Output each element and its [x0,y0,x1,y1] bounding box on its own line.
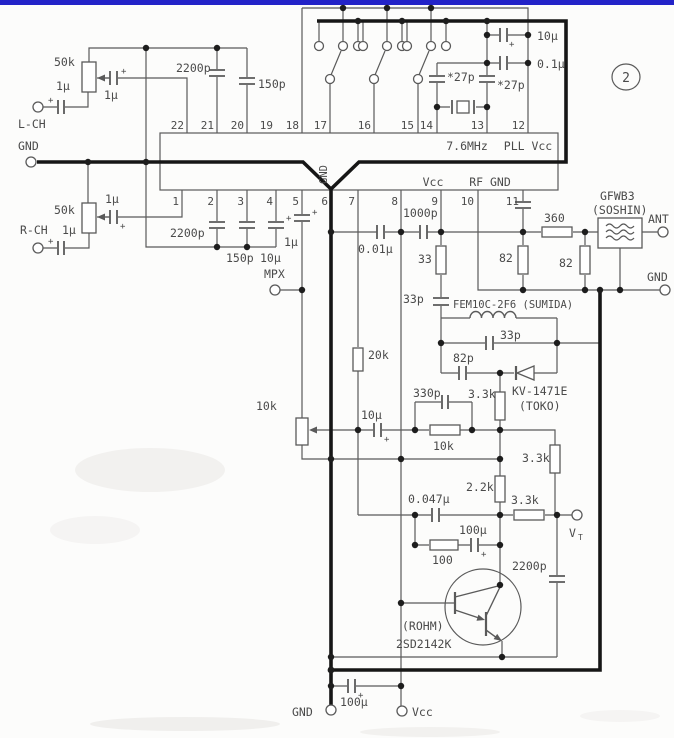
label-vcc-bottom: Vcc [412,705,433,719]
label-xtal-freq: 7.6MHz [446,139,488,153]
wiper-arrow-10k [309,427,317,434]
junction-dot [214,45,220,51]
cap-100u-b [348,679,355,693]
cap-rch-input [58,241,64,255]
label-1000p: 1000p [403,206,438,220]
label-ic-gnd-rotated: GND [318,165,330,184]
label-gnd-left: GND [18,139,39,153]
junction-dot [497,582,503,588]
pin-label-7: 7 [348,195,355,208]
junction-dot [328,229,334,235]
schematic-page: 2 L-CH GND 50k 1μ 1μ 2200p 150p R-CH 1μ … [0,0,674,738]
junction-dot [355,427,361,433]
switch1-contact-a [315,42,324,51]
label-3k3-c: 3.3k [511,493,539,507]
pin-label-20: 20 [231,119,244,132]
label-3k3-a: 3.3k [468,387,496,401]
scan-smudge [360,727,500,737]
junction-dot [328,456,334,462]
schematic-canvas: 2 L-CH GND 50k 1μ 1μ 2200p 150p R-CH 1μ … [0,0,674,738]
res-3k3-a [495,392,505,420]
plus-mark: + [121,67,127,77]
junction-dot [497,456,503,462]
label-0047u: 0.047μ [408,492,450,506]
cap-lch-wiper [110,71,117,85]
cap-2200p-c [549,576,565,582]
pin-label-16: 16 [358,119,371,132]
switch1-pole [326,75,335,84]
pot-50k-left [82,62,96,92]
label-cap-r-in: 1μ [62,223,76,237]
junction-dot [214,244,220,250]
pot-10k [296,418,308,445]
junction-dot [520,229,526,235]
res-82-a [518,246,528,274]
cap-27p-a [429,76,445,82]
cap-0047u [432,508,439,522]
switch2-contact-a [359,42,368,51]
junction-dot [469,427,475,433]
junction-dot [484,18,490,24]
junction-dot [428,5,434,11]
junction-dot [398,600,404,606]
junction-dot [497,542,503,548]
pin-label-4: 4 [266,195,273,208]
label-pll-vcc: PLL Vcc [504,139,552,153]
label-transistor-part: 2SD2142K [396,637,451,651]
cap-150p-bottom [239,222,255,228]
label-cap-l-in: 1μ [56,79,70,93]
junction-dot [443,18,449,24]
pin-label-2: 2 [207,195,214,208]
pin-label-12: 12 [512,119,525,132]
crystal-body [457,101,469,113]
junction-dot [484,60,490,66]
switch3-contact-a [403,42,412,51]
terminal-ant [658,227,668,237]
junction-dot [412,542,418,548]
junction-dot [399,18,405,24]
pin-label-8: 8 [391,195,398,208]
switch3-pole [414,75,423,84]
label-gnd-bottom: GND [292,705,313,719]
switch2-pole [370,75,379,84]
label-1u-pin5: 1μ [284,235,298,249]
junction-dot [412,512,418,518]
transistor-base-bars [455,592,486,636]
junction-dot [328,654,334,660]
cap-10u-pin4 [268,222,284,228]
label-r360: 360 [544,211,565,225]
cap-150p-top [239,78,255,84]
plus-mark: + [286,214,292,224]
antenna-filter [598,218,642,248]
terminal-lch [33,102,43,112]
res-3k3-c [514,510,544,520]
label-r20k: 20k [368,348,389,362]
junction-dot [484,32,490,38]
scan-smudge [75,448,225,492]
junction-dot [85,159,91,165]
plus-mark: + [48,96,54,106]
junction-dot [244,244,250,250]
junction-dot [412,427,418,433]
junction-dot [328,667,335,674]
junction-dot [554,512,560,518]
pin-label-3: 3 [237,195,244,208]
junction-dot [398,229,404,235]
transistor-2sd2142k [445,569,521,645]
label-0u1-pll: 0.1μ [537,57,565,71]
label-cap-l-wiper: 1μ [104,88,118,102]
junction-dot [438,229,444,235]
coil-fem10c [470,312,516,318]
emitter-arrow-2 [494,634,502,641]
plus-mark: + [509,40,515,50]
capacitor-plates [58,28,565,693]
junction-dot [582,287,588,293]
label-ic-vcc: Vcc [423,175,444,189]
junction-dot [582,229,588,235]
label-cap-r-wiper: 1μ [105,192,119,206]
junction-dot [617,287,623,293]
label-r100: 100 [432,553,453,567]
plus-mark: + [358,691,364,701]
pin-label-14: 14 [420,119,434,132]
res-2k2 [495,476,505,502]
label-varicap-maker: (TOKO) [519,399,561,413]
wiper-arrow-right [97,214,105,221]
pin-label-1: 1 [172,195,179,208]
cap-33p-b [486,336,493,350]
label-r82-b: 82 [559,256,573,270]
pin-label-6: 6 [321,195,328,208]
terminal-gnd-left [26,157,36,167]
scan-artifacts [50,448,660,737]
label-27p-a: *27p [447,70,475,84]
label-ant: ANT [648,212,669,226]
junction-dot [143,159,149,165]
terminal-mpx [270,285,280,295]
plus-mark: + [48,237,54,247]
emitter-arrow-1 [477,615,486,621]
label-vt: V [569,526,576,540]
cap-0u01 [377,225,384,239]
label-r2k2: 2.2k [466,480,494,494]
wiper-arrow-left [97,75,105,82]
res-100 [430,540,458,550]
label-mpx: MPX [264,267,285,281]
res-33 [436,246,446,274]
label-pot-r: 50k [54,203,75,217]
varicap-diode [516,366,534,380]
label-lch: L-CH [18,117,46,131]
badge-number: 2 [622,71,630,86]
scan-smudge [50,516,140,544]
cap-2200p-top [209,70,225,76]
crystal-7-6mhz [452,100,474,114]
terminal-vt [572,510,582,520]
junction-dot [143,45,149,51]
label-33p-b: 33p [500,328,521,342]
cap-27p-b [479,76,495,82]
plus-mark: + [312,208,318,218]
label-gnd-right: GND [647,270,668,284]
junction-dot [499,654,505,660]
junction-dot [355,18,361,24]
cap-lch-input [58,100,64,114]
switch3-contact-b [427,42,436,51]
label-filter-maker: (SOSHIN) [592,203,647,217]
label-3k3-b: 3.3k [522,451,550,465]
label-transistor-maker: (ROHM) [402,619,444,633]
junction-dot [398,683,404,689]
plus-mark: + [120,222,126,232]
cap-1000p [420,225,427,239]
pin-label-21: 21 [201,119,214,132]
label-rch: R-CH [20,223,48,237]
label-pot-l: 50k [54,55,75,69]
junction-dot [484,104,490,110]
junction-dot [299,287,305,293]
junction-dots [85,5,623,689]
junction-dot [398,456,404,462]
pin-label-15: 15 [401,119,414,132]
label-330p: 330p [413,386,441,400]
pin-label-18: 18 [286,119,299,132]
plus-mark: + [481,550,487,560]
label-2200p-top: 2200p [176,61,211,75]
pot-50k-right [82,203,96,233]
label-2200p-bottom: 2200p [170,226,205,240]
cap-100u-a [471,538,478,552]
cap-10u-pll [500,28,507,42]
junction-dot [597,287,603,293]
scan-smudge [90,717,280,731]
cap-0u1-pll [500,56,507,70]
wires-switch-box [302,8,528,133]
label-r10k: 10k [433,439,454,453]
filter-body [598,218,642,248]
transistor-leads [455,586,500,638]
junction-dot [497,427,503,433]
cap-33p-a [433,298,449,305]
switch2-contact-b [383,42,392,51]
plus-mark: + [384,435,390,445]
diode-triangle [517,366,534,380]
junction-dot [497,370,503,376]
wires-rf-row [331,190,660,686]
label-10u-wiper: 10μ [361,408,382,422]
pin-label-19: 19 [260,119,273,132]
pin-label-13: 13 [471,119,484,132]
page-badge: 2 [612,64,640,90]
terminal-rch [33,243,43,253]
res-20k [353,348,363,371]
terminal-vcc-bottom [397,706,407,716]
res-360 [542,227,572,237]
cap-2200p-bottom [209,222,225,228]
pin-label-17: 17 [314,119,327,132]
junction-dot [525,60,531,66]
label-coil: FEM10C-2F6 (SUMIDA) [453,299,573,311]
label-100u-a: 100μ [459,523,487,537]
res-10k [430,425,460,435]
pin-label-10: 10 [461,195,474,208]
label-150p-bottom: 150p [226,251,254,265]
junction-dot [497,512,503,518]
label-r82-a: 82 [499,251,513,265]
junction-dot [520,287,526,293]
cap-1u-pin5 [294,215,310,221]
cap-330p [442,395,448,409]
pin-label-22: 22 [171,119,184,132]
cap-82p [459,366,466,380]
transistor-circle [445,569,521,645]
junction-dot [525,32,531,38]
res-3k3-b [550,445,560,473]
junction-dot [438,340,444,346]
junction-dot [434,104,440,110]
label-r33: 33 [418,252,432,266]
label-27p-b: *27p [497,78,525,92]
pin-label-11: 11 [506,195,519,208]
label-10u-pin4: 10μ [260,251,281,265]
pin-label-9: 9 [431,195,438,208]
label-2200p-c: 2200p [512,559,547,573]
label-ic-rf-gnd: RF GND [469,175,511,189]
cap-rch-wiper [110,210,117,224]
mode-switches [315,42,451,84]
label-82p: 82p [453,351,474,365]
label-10u-pll: 10μ [537,29,558,43]
junction-dot [554,340,560,346]
label-150p-top: 150p [258,77,286,91]
switch1-contact-b [339,42,348,51]
label-100u-b: 100μ [340,695,368,709]
scan-smudge [580,710,660,722]
label-0u01: 0.01μ [358,242,393,256]
res-82-b [580,246,590,274]
junction-dot [328,683,334,689]
junction-dot [384,5,390,11]
cap-10u-wiper [374,423,381,437]
junction-dot [340,5,346,11]
label-33p-a: 33p [403,292,424,306]
terminal-gnd-right [660,285,670,295]
label-varicap: KV-1471E [512,384,567,398]
label-pot-10k: 10k [256,399,277,413]
terminal-gnd-bottom [326,705,336,715]
label-vt-sub: T [578,533,583,542]
pin-label-5: 5 [292,195,299,208]
label-filter: GFWB3 [600,189,635,203]
switch3-contact-c [442,42,451,51]
